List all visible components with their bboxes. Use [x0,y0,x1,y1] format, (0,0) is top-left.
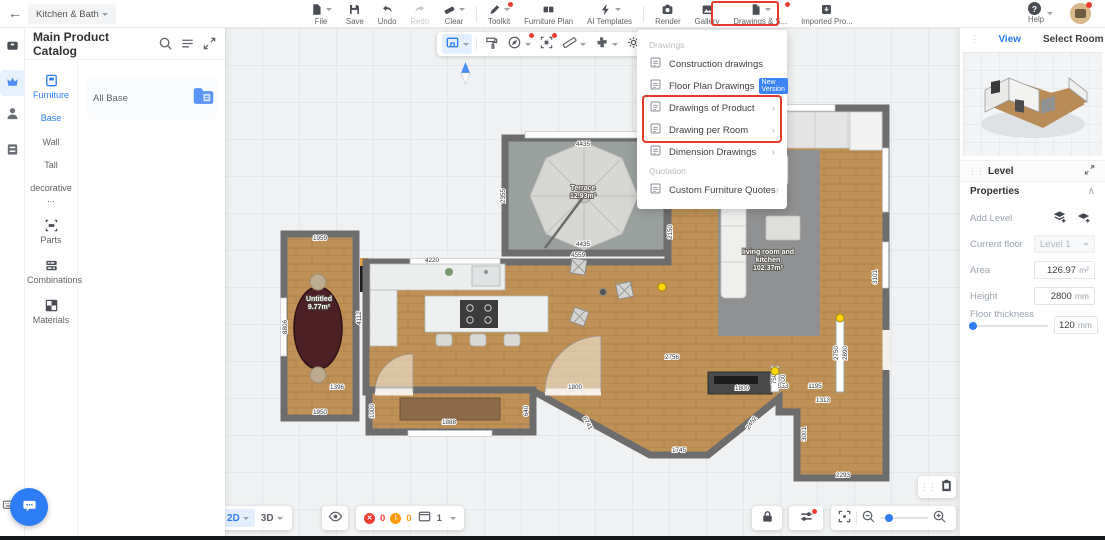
dimension-label: 4435 [576,141,591,148]
sidebar-item-tall[interactable]: Tall [25,154,77,177]
notification-dot [529,33,534,38]
ruler-icon [562,35,577,53]
drawing-doc-icon [649,100,662,116]
notification-dot [552,33,557,38]
tab-label: Furniture [33,90,69,100]
menu-item-floor-plan-drawings[interactable]: Floor Plan DrawingsNew Version [637,75,787,97]
dimension-label: 1950 [313,409,328,416]
floorplan-canvas[interactable]: 4435443545592355215042201959195088064112… [225,28,960,536]
lock-button[interactable] [752,506,782,530]
toolbar-file-button[interactable]: File [303,0,339,28]
toolbar-divider [476,37,477,51]
toolbar-label: Save [346,17,364,26]
dimension-label: 1800 [568,384,583,391]
chevron-down-icon [102,13,108,19]
3d-preview-image [963,52,1102,156]
parts-icon [44,218,59,233]
drawer-icon [5,38,20,56]
tab-label: Tall [44,160,58,170]
level-section-header[interactable]: ⋮⋮ Level [960,160,1105,182]
file-icon [310,3,332,16]
room-untitled [281,234,369,418]
right-panel-tabs: ⋮ View Select Room [960,28,1105,50]
drawing-doc-icon [649,78,662,94]
materials-icon [44,298,59,313]
zoom-bar [831,506,956,530]
dimension-label: 2890 [842,346,849,361]
drag-handle-icon: ⋮⋮ [920,482,936,493]
add-level-above-button[interactable] [1047,208,1071,228]
project-name: Kitchen & Bath [36,9,99,20]
chevron-down-icon [459,8,465,14]
error-badge-icon: ✕ [364,513,375,524]
height-value: 2800 [1051,291,1072,302]
mode-2d-label: 2D [227,513,240,524]
all-base-folder[interactable]: All Base [87,76,217,120]
list-icon[interactable] [180,36,195,51]
drawing-doc-icon [649,122,662,138]
rail-profile-button[interactable] [0,102,25,128]
tab-label: Combinations [27,275,82,285]
crown-icon [5,74,20,92]
toolbar-divider [643,6,644,22]
toolbar-divider [476,6,477,22]
magic-select-icon [539,35,554,53]
redo-icon [413,3,426,16]
chevron-down-icon [243,517,249,523]
toolbar-label: Drawings & S... [733,17,787,26]
height-unit: mm [1075,291,1089,301]
chevron-right-icon: › [772,125,775,136]
thickness-value: 120 [1059,320,1075,331]
drawings-s-icon [749,3,771,16]
toolbar-label: Render [655,17,681,26]
dimension-label: 1396 [330,384,345,391]
compass-button[interactable] [504,34,534,54]
compass-icon [507,35,522,53]
drag-handle-icon: ⋮ [970,34,978,45]
dimension-label: 2150 [667,225,674,240]
dimension-label: 1745 [672,447,687,454]
zoom-in-icon[interactable] [932,509,947,527]
height-label: Height [970,291,1034,302]
collapse-icon[interactable] [202,36,217,51]
chevron-right-icon: › [772,147,775,158]
display-settings-button[interactable] [789,506,823,530]
chevron-down-icon [450,517,456,523]
dimension-label: 2750 [833,346,840,361]
wall-endpoint-marker[interactable] [771,367,779,375]
chevron-down-icon [612,43,618,49]
chevron-down-icon [615,8,621,14]
area-unit: m² [1079,265,1089,275]
ai-templates-icon [599,3,621,16]
dimension-label: 1888 [442,419,457,426]
clipboard-icon [939,478,954,496]
toolbar-label: Gallery [695,17,720,26]
chevron-down-icon [277,517,283,523]
dimension-label: 1000 [369,404,376,419]
area-value: 126.97 [1047,265,1076,276]
current-floor-row: Current floor Level 1 [960,235,1105,253]
toolkit-icon [488,3,510,16]
help-label: Help [1028,15,1044,24]
room-tool-button[interactable] [442,34,472,54]
add-floor-below-icon [1076,209,1091,227]
chevron-down-icon [1047,12,1053,18]
furniture-plan-icon [542,3,555,16]
level-title: Level [988,166,1082,177]
chat-button[interactable] [10,488,48,526]
dimension-label: 3001 [801,427,808,442]
room-label: Terrace12.93m² [570,185,597,200]
drawing-doc-icon [649,56,662,72]
help-button[interactable]: ? Help [1028,2,1053,24]
catalog-header: Main Product Catalog [25,28,225,60]
3d-preview[interactable] [963,52,1102,156]
properties-title: Properties [970,186,1088,197]
menu-item-label: Dimension Drawings [669,147,756,158]
chevron-down-icon [504,8,510,14]
search-icon[interactable] [158,36,173,51]
menu-item-custom-furniture-quotes[interactable]: Custom Furniture Quotes› [637,179,787,201]
drawing-doc-icon [649,182,662,198]
combinations-icon [44,258,59,273]
warning-count: 0 [406,513,411,524]
toolbar-save-button[interactable]: Save [339,0,371,28]
notification-dot [508,2,513,7]
toolbar-redo-button[interactable]: Redo [403,0,436,28]
drawing-doc-icon [649,144,662,160]
new-version-badge: New Version [759,78,788,94]
canvas-toolbar [437,32,658,56]
toolbar-label: Toolkit [488,17,510,26]
menu-section-drawings: Drawings [637,37,787,53]
lock-icon [760,509,775,527]
error-count: 0 [380,513,385,524]
menu-item-label: Drawing per Room [669,125,748,136]
toolbar-furniture-plan-button[interactable]: Furniture Plan [517,0,580,28]
area-input[interactable]: 126.97 m² [1034,261,1095,279]
menu-item-construction-drawings[interactable]: Construction drawings [637,53,787,75]
zoom-out-icon[interactable] [861,509,876,527]
dimension-label: 4435 [576,241,591,248]
wall-endpoint-marker[interactable] [658,283,666,291]
dimension-label: 1800 [735,385,750,392]
all-base-label: All Base [93,93,128,104]
visibility-button[interactable] [322,506,348,530]
add-level-label: Add Level [970,213,1047,224]
toolbar-imported-pro-button[interactable]: Imported Pro... [794,0,860,28]
thickness-input[interactable]: 120 mm [1054,316,1098,334]
toolbar-clear-button[interactable]: Clear [436,0,472,28]
menu-item-drawing-per-room[interactable]: Drawing per Room› [637,119,787,141]
menu-section-quotation: Quotation [637,163,787,179]
toolbar-label: Imported Pro... [801,17,853,26]
view-mode-bar: 2D 3D [218,506,292,530]
screen-edge-strip [0,536,1105,540]
left-icon-rail [0,28,25,540]
toolbar-label: Undo [378,17,397,26]
current-floor-value: Level 1 [1040,239,1071,250]
undo-icon [381,3,394,16]
dimension-label: 4559 [571,252,586,259]
notification-dot [812,509,817,514]
plugin-icon [594,35,609,53]
toolbar-label: Clear [445,17,464,26]
floorplan-drawing: 4435443545592355215042201959195088064112… [225,28,960,536]
menu-item-label: Construction drawings [669,59,763,70]
toolbar-label: AI Templates [587,17,632,26]
product-catalog-panel: Main Product Catalog FurnitureBaseWallTa… [25,28,225,540]
question-icon: ? [1028,2,1041,15]
issue-counter-bar[interactable]: ✕ 0 ! 0 1 [356,506,464,530]
chevron-right-icon: › [776,185,779,196]
menu-item-label: Custom Furniture Quotes [669,185,776,196]
tab-select-room[interactable]: Select Room [1042,34,1105,45]
floating-clipboard-button[interactable]: ⋮⋮ [918,476,956,498]
dimension-label: 1195 [808,383,822,390]
toolbar-render-button[interactable]: Render [648,0,688,28]
warning-badge-icon: ! [390,513,401,524]
toolbar-buttons: FileSaveUndoRedoClearToolkitFurniture Pl… [303,0,860,28]
chevron-down-icon [1083,243,1089,249]
area-row: Area 126.97 m² [960,261,1105,279]
room-label: Untitled9.77m² [306,296,332,311]
tab-label: decorative ... [30,183,72,204]
paint-roller-button[interactable] [481,34,502,54]
current-floor-select[interactable]: Level 1 [1034,235,1095,253]
sidebar-item-materials[interactable]: Materials [25,292,77,332]
expand-icon[interactable] [1084,164,1096,178]
height-input[interactable]: 2800 mm [1034,287,1095,305]
person-icon [5,106,20,124]
ruler-button[interactable] [559,34,589,54]
furniture-icon [44,73,59,88]
paint-roller-icon [484,35,499,53]
zoom-slider[interactable] [880,517,928,519]
avatar-image [1075,9,1086,18]
tab-label: Wall [42,137,59,147]
sidebar-item-furniture[interactable]: Furniture [25,67,77,107]
toolbar-label: Furniture Plan [524,17,573,26]
drag-handle-icon: ⋮⋮ [968,166,984,177]
eye-icon [328,509,343,527]
room-tool-icon [445,35,460,53]
zoom-slider-knob[interactable] [885,514,893,522]
sidebar-item-decorative[interactable]: decorative ... [25,177,77,212]
window-icon [417,509,432,527]
render-icon [661,3,674,16]
rail-cabinet-button[interactable] [0,138,25,164]
menu-item-label: Drawings of Product [669,103,755,114]
rail-drawer-button[interactable] [0,34,25,60]
catalog-tabs: FurnitureBaseWallTalldecorative ...Parts… [25,61,78,539]
toolbar-undo-button[interactable]: Undo [371,0,404,28]
tab-view[interactable]: View [978,34,1042,45]
floor-thickness-slider[interactable] [970,325,1048,327]
right-panel: ⋮ View Select Room ⋮⋮ Level Properties ∧… [960,28,1105,540]
chevron-up-icon: ∧ [1088,186,1095,197]
clear-icon [443,3,465,16]
mode-3d-label: 3D [261,513,274,524]
add-level-below-button[interactable] [1071,208,1095,228]
chevron-right-icon: › [772,103,775,114]
catalog-title: Main Product Catalog [33,30,151,58]
drawings-menu: DrawingsConstruction drawingsFloor Plan … [637,30,787,209]
view-count: 1 [437,513,442,524]
current-floor-label: Current floor [970,239,1034,250]
chevron-down-icon [580,43,586,49]
project-selector[interactable]: Kitchen & Bath [28,4,116,24]
toolbar-ai-templates-button[interactable]: AI Templates [580,0,639,28]
magic-select-button[interactable] [536,34,557,54]
thickness-unit: mm [1078,320,1092,330]
chevron-down-icon [765,8,771,14]
tab-label: Materials [33,315,70,325]
area-label: Area [970,265,1034,276]
toolbar-gallery-button[interactable]: Gallery [688,0,727,28]
toolbar-toolkit-button[interactable]: Toolkit [481,0,517,28]
fit-screen-icon[interactable] [837,509,852,527]
sidebar-item-parts[interactable]: Parts [25,212,77,252]
wall-endpoint-marker[interactable] [836,314,844,322]
chevron-down-icon [326,8,332,14]
rail-featured-button[interactable] [0,70,25,96]
folder-icon [192,84,216,113]
sidebar-item-wall[interactable]: Wall [25,131,77,154]
chat-bubble-icon [22,498,37,516]
dimension-label: 2756 [665,354,680,361]
menu-item-label: Floor Plan Drawings [669,81,755,92]
dimension-label: 700 [780,374,787,385]
notification-dot [785,2,790,7]
north-pin-icon[interactable] [460,62,471,85]
menu-item-drawings-of-product[interactable]: Drawings of Product› [637,97,787,119]
height-row: Height 2800 mm [960,287,1105,305]
gallery-icon [701,3,714,16]
chevron-down-icon [463,43,469,49]
plugin-button[interactable] [591,34,621,54]
avatar[interactable] [1070,3,1091,24]
menu-item-dimension-drawings[interactable]: Dimension Drawings› [637,141,787,163]
tab-label: Parts [40,235,61,245]
dimension-label: 8806 [282,320,289,335]
imported-pro-icon [820,3,833,16]
tab-label: Base [41,113,62,123]
add-floor-above-icon [1052,209,1067,227]
dimension-label: 1959 [313,235,328,242]
sidebar-item-base[interactable]: Base [25,107,77,130]
dimension-label: 3101 [872,270,879,285]
dimension-label: 4112 [356,311,363,325]
dimension-label: 2355 [500,189,507,204]
toolbar-label: File [315,17,328,26]
slider-knob[interactable] [969,322,977,330]
mode-3d-button[interactable]: 3D [255,509,289,527]
dimension-label: 640 [523,405,530,416]
dimension-label: 1313 [816,397,831,404]
toolbar-drawings-s-button[interactable]: Drawings & S... [726,0,794,28]
chevron-down-icon [525,43,531,49]
mode-2d-button[interactable]: 2D [221,509,255,527]
properties-header[interactable]: Properties ∧ [960,186,1105,197]
save-icon [348,3,361,16]
back-button[interactable]: ← [8,5,22,21]
cabinet-icon [5,142,20,160]
top-toolbar: ← Kitchen & Bath FileSaveUndoRedoClearTo… [0,0,1105,28]
toolbar-label: Redo [410,17,429,26]
add-level-row: Add Level [960,208,1105,228]
dimension-label: 4220 [425,257,440,264]
dimension-label: 2293 [836,472,851,479]
sidebar-item-combinations[interactable]: Combinations [25,252,77,292]
